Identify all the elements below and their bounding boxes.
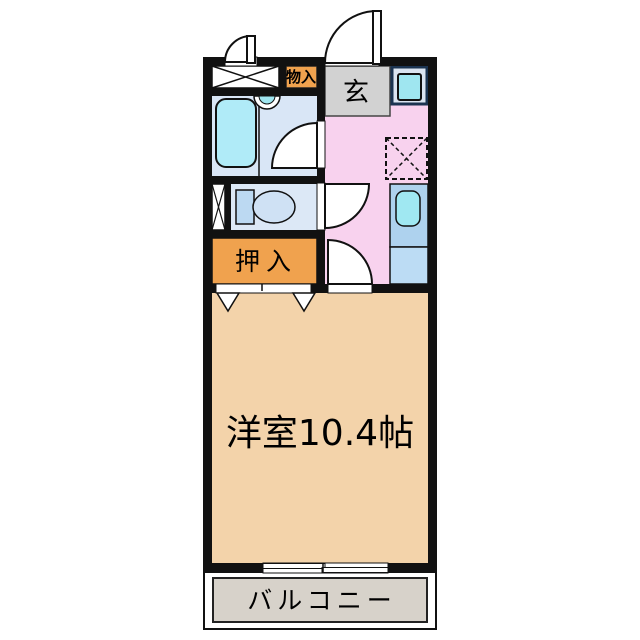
window-pane-left [263,564,325,569]
kitchen-unit [390,184,428,284]
label-oshiire: 押入 [235,247,297,276]
crossed-storage-box [212,66,279,88]
label-main-room: 洋室10.4帖 [226,413,414,454]
wall-pipe-space [225,184,231,230]
floor-plan-canvas: 物入 玄 押入 洋室10.4帖 バルコニー [0,0,640,640]
balcony-sliding-window [263,563,388,573]
storage-door-leaf [247,36,255,63]
wall-bath-toilet [203,176,325,184]
label-monoire: 物入 [286,68,316,86]
pipe-space-box [212,184,225,230]
label-genkan: 玄 [343,78,369,108]
bathroom-doorway [317,121,325,168]
bathtub [216,99,256,167]
wall-toilet-closet [203,230,325,238]
window-pane-right [322,568,388,573]
toilet-fixture [236,190,295,224]
wall-right [428,57,437,573]
room-doorway [328,284,372,293]
entrance-door-leaf [373,11,381,64]
wall-bath-top [203,88,325,96]
wall-box-divider [279,66,286,88]
kitchen-sink [396,191,420,226]
floor-plan-page: 物入 玄 押入 洋室10.4帖 バルコニー [0,0,640,640]
washing-machine-box [392,67,427,104]
label-balcony: バルコニー [247,586,397,615]
toilet-doorway [317,183,325,230]
wall-left [203,57,212,573]
kitchen-lower-counter [390,247,428,284]
